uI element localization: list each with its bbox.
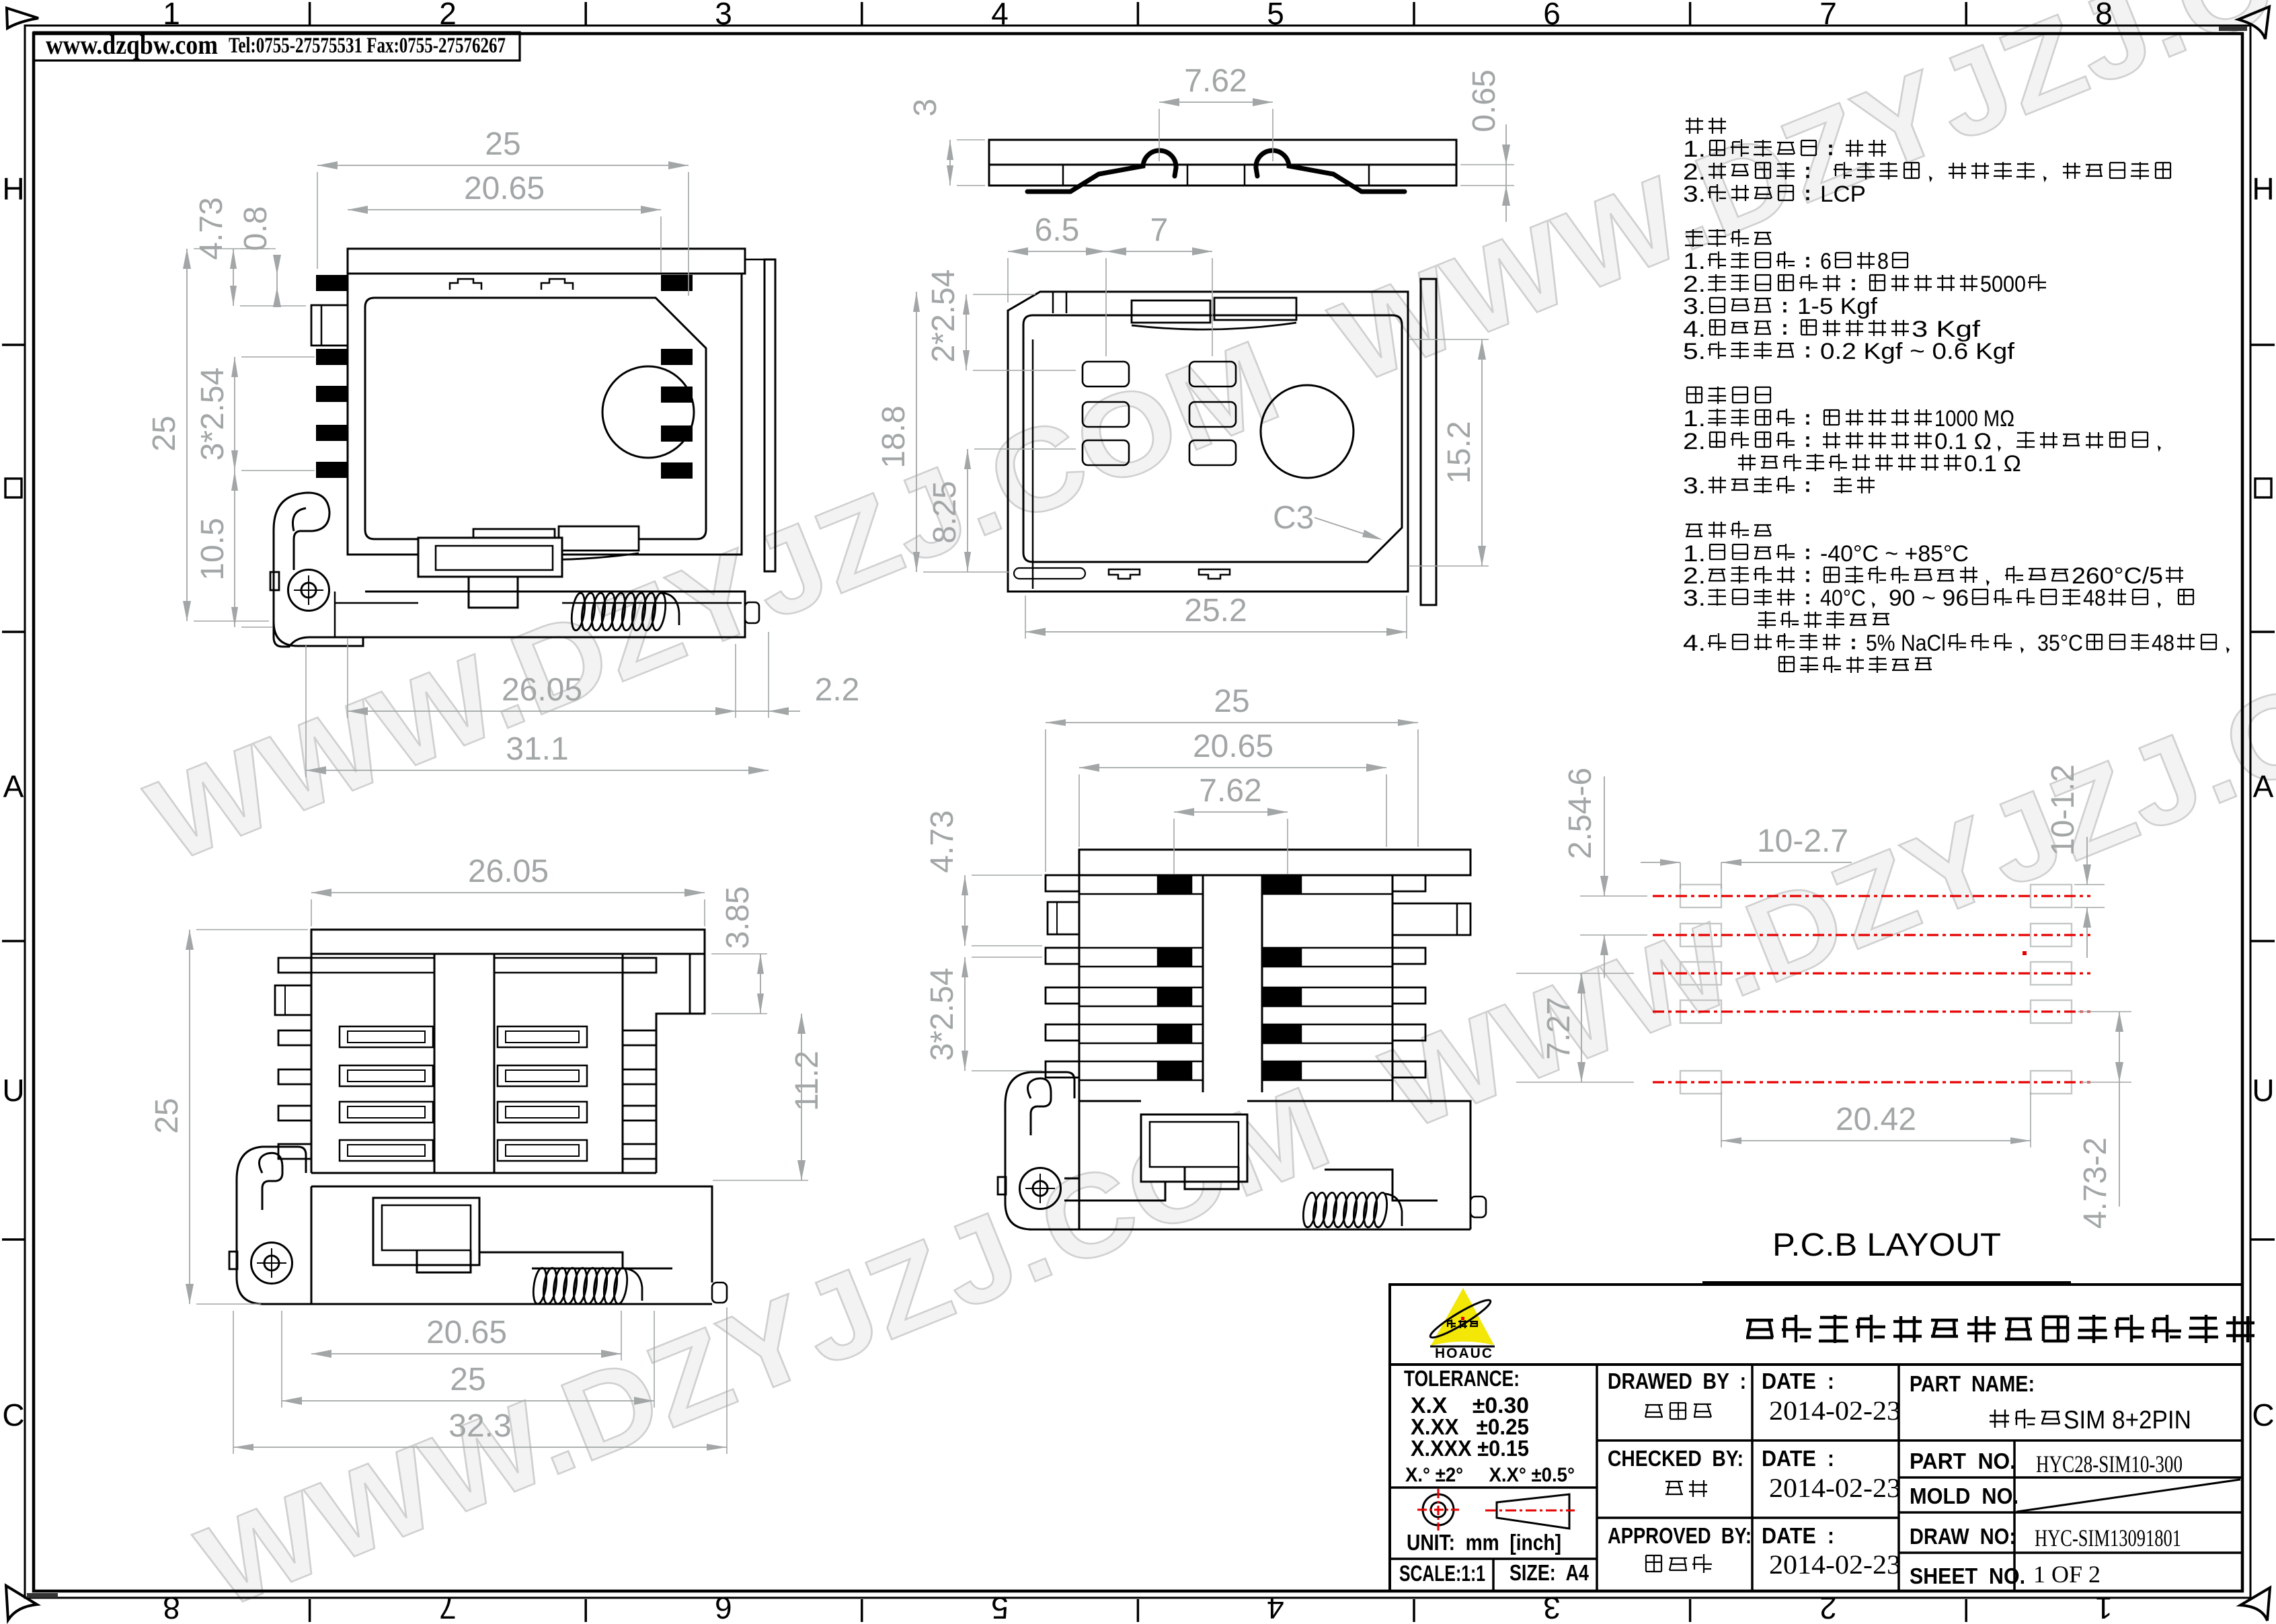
svg-text:26.05: 26.05 <box>502 672 582 708</box>
svg-text:11.2: 11.2 <box>789 1051 825 1111</box>
svg-text:6.5: 6.5 <box>1035 212 1080 248</box>
svg-text:SCALE:1:1: SCALE:1:1 <box>1399 1561 1485 1586</box>
svg-text:32.3: 32.3 <box>448 1408 511 1444</box>
svg-text:C3: C3 <box>1273 500 1314 536</box>
svg-text:PART NO.: PART NO. <box>1910 1449 2016 1473</box>
svg-text:8.25: 8.25 <box>927 481 963 543</box>
svg-text:SHEET NO.: SHEET NO. <box>1910 1564 2025 1588</box>
svg-text:C: C <box>2 1397 24 1432</box>
svg-text:25: 25 <box>149 1098 185 1133</box>
svg-text:7: 7 <box>1819 0 1837 31</box>
svg-text:3*2.54: 3*2.54 <box>195 368 231 461</box>
svg-text:5.: 5. <box>1683 339 1706 364</box>
svg-text:6: 6 <box>1543 0 1561 31</box>
svg-text:25: 25 <box>1214 684 1249 719</box>
svg-text:4.73-2: 4.73-2 <box>2078 1137 2113 1229</box>
svg-text:DATE :: DATE : <box>1762 1523 1834 1548</box>
svg-text:H: H <box>2252 171 2274 206</box>
svg-text:P.C.B LAYOUT: P.C.B LAYOUT <box>1772 1227 2001 1263</box>
svg-text:25.2: 25.2 <box>1184 593 1247 628</box>
svg-text:26.05: 26.05 <box>468 854 549 889</box>
svg-text:2014-02-23: 2014-02-23 <box>1769 1473 1901 1503</box>
svg-text:2014-02-23: 2014-02-23 <box>1769 1395 1901 1426</box>
svg-text:CHECKED BY:: CHECKED BY: <box>1608 1446 1743 1471</box>
svg-text:LCP: LCP <box>1820 181 1866 207</box>
svg-text:2: 2 <box>439 0 457 31</box>
svg-text:MOLD NO.: MOLD NO. <box>1910 1484 2018 1508</box>
svg-text:8: 8 <box>163 1590 180 1624</box>
svg-text:1: 1 <box>163 0 180 31</box>
svg-text:3.85: 3.85 <box>720 886 756 948</box>
svg-text:1000 MΩ: 1000 MΩ <box>1934 406 2014 432</box>
svg-text:DRAW NO:: DRAW NO: <box>1910 1524 2016 1549</box>
svg-text:0.65: 0.65 <box>1466 69 1502 132</box>
svg-text:www.dzqbw.com: www.dzqbw.com <box>46 30 218 60</box>
svg-text:H: H <box>2 171 24 206</box>
svg-text:HOAUC: HOAUC <box>1435 1346 1493 1361</box>
svg-text:10-2.7: 10-2.7 <box>1757 823 1848 859</box>
svg-text:X.° ±2° X.X° ±0.5°: X.° ±2° X.X° ±0.5° <box>1405 1464 1575 1486</box>
svg-text:1: 1 <box>2095 1590 2113 1624</box>
svg-text:20.65: 20.65 <box>464 171 545 206</box>
svg-text:40°C: 40°C <box>1820 585 1866 611</box>
svg-text:APPROVED BY:: APPROVED BY: <box>1608 1523 1752 1548</box>
svg-text:2014-02-23: 2014-02-23 <box>1769 1549 1901 1580</box>
svg-text:X.XXX ±0.15: X.XXX ±0.15 <box>1411 1436 1529 1461</box>
svg-text:TOLERANCE:: TOLERANCE: <box>1404 1366 1520 1391</box>
svg-text:15.2: 15.2 <box>1442 421 1477 483</box>
svg-text:PART NAME:: PART NAME: <box>1910 1371 2035 1396</box>
svg-text:1.: 1. <box>1683 406 1706 432</box>
svg-text:1-5 Kgf: 1-5 Kgf <box>1797 294 1878 319</box>
svg-text:8: 8 <box>1877 249 1889 274</box>
svg-text:3: 3 <box>1543 1590 1561 1624</box>
svg-text:10.5: 10.5 <box>195 518 231 580</box>
svg-text:10-1.2: 10-1.2 <box>2045 764 2081 856</box>
svg-text:U: U <box>2252 1073 2274 1108</box>
svg-text:SIZE: A4: SIZE: A4 <box>1509 1560 1590 1585</box>
svg-text:20.42: 20.42 <box>1836 1102 1916 1137</box>
svg-text:7.62: 7.62 <box>1184 63 1247 99</box>
svg-text:6: 6 <box>1820 249 1832 274</box>
svg-text:3: 3 <box>715 0 732 31</box>
svg-text:HYC-SIM13091801: HYC-SIM13091801 <box>2035 1525 2181 1551</box>
svg-text:2.: 2. <box>1683 429 1706 454</box>
svg-text:0.8: 0.8 <box>238 206 274 251</box>
svg-text:DATE :: DATE : <box>1762 1446 1834 1471</box>
svg-text:25: 25 <box>485 126 520 162</box>
svg-text:A: A <box>2253 769 2274 804</box>
svg-text:5% NaCl: 5% NaCl <box>1866 631 1946 656</box>
svg-text:4: 4 <box>991 0 1009 31</box>
svg-text:20.65: 20.65 <box>426 1315 507 1350</box>
svg-text:18.8: 18.8 <box>876 405 912 468</box>
svg-text:UNIT: mm [inch]: UNIT: mm [inch] <box>1407 1530 1561 1555</box>
svg-text:4.: 4. <box>1683 631 1706 656</box>
svg-text:3: 3 <box>908 99 943 117</box>
svg-text:7: 7 <box>1150 212 1169 248</box>
svg-text:Tel:0755-27575531 Fax:0755-27: Tel:0755-27575531 Fax:0755-27576267 <box>229 34 506 58</box>
svg-text:2.2: 2.2 <box>815 672 860 708</box>
svg-text:48: 48 <box>2152 631 2174 656</box>
svg-text:3.: 3. <box>1683 294 1706 319</box>
svg-text:0.2 Kgf ~ 0.6 Kgf: 0.2 Kgf ~ 0.6 Kgf <box>1820 339 2015 364</box>
svg-text:4: 4 <box>1267 1590 1284 1624</box>
svg-text:1 OF 2: 1 OF 2 <box>2033 1561 2101 1588</box>
svg-text:3*2.54: 3*2.54 <box>925 968 960 1061</box>
svg-text:3.: 3. <box>1683 473 1706 499</box>
svg-text:7.62: 7.62 <box>1199 773 1261 809</box>
svg-text:SIM 8+2PIN: SIM 8+2PIN <box>2064 1406 2191 1434</box>
svg-text:2: 2 <box>1819 1590 1837 1624</box>
svg-text:25: 25 <box>450 1362 485 1397</box>
svg-text:2.54-6: 2.54-6 <box>1563 768 1598 859</box>
svg-text:C: C <box>2252 1397 2274 1432</box>
svg-text:7: 7 <box>439 1590 457 1624</box>
svg-text:A: A <box>3 769 24 804</box>
svg-text:DRAWED BY :: DRAWED BY : <box>1608 1369 1746 1393</box>
svg-text:4.73: 4.73 <box>925 810 960 872</box>
svg-text:HYC28-SIM10-300: HYC28-SIM10-300 <box>2036 1451 2183 1477</box>
svg-text:1.: 1. <box>1683 249 1706 274</box>
svg-text:0.1 Ω: 0.1 Ω <box>1964 451 2021 477</box>
svg-text:25: 25 <box>147 415 182 451</box>
svg-text:5: 5 <box>991 1590 1009 1624</box>
svg-text:5: 5 <box>1267 0 1284 31</box>
svg-text:35°C: 35°C <box>2037 631 2083 656</box>
svg-text:6: 6 <box>715 1590 732 1624</box>
svg-text:3.: 3. <box>1683 181 1706 207</box>
svg-text:2*2.54: 2*2.54 <box>926 270 962 363</box>
svg-text:90 ~ 96: 90 ~ 96 <box>1889 585 1969 611</box>
svg-text:1.: 1. <box>1683 136 1706 162</box>
svg-text:3.: 3. <box>1683 585 1706 611</box>
svg-text:4.73: 4.73 <box>194 197 229 259</box>
svg-text:5000: 5000 <box>1980 272 2026 297</box>
svg-text:U: U <box>2 1073 24 1108</box>
svg-text:48: 48 <box>2083 585 2106 611</box>
svg-text:-40°C ~ +85°C: -40°C ~ +85°C <box>1820 541 1969 567</box>
svg-text:7.27: 7.27 <box>1541 997 1577 1059</box>
svg-text:DATE :: DATE : <box>1762 1369 1834 1393</box>
svg-text:31.1: 31.1 <box>506 731 568 767</box>
svg-text:20.65: 20.65 <box>1193 729 1273 764</box>
svg-text:8: 8 <box>2095 0 2113 31</box>
